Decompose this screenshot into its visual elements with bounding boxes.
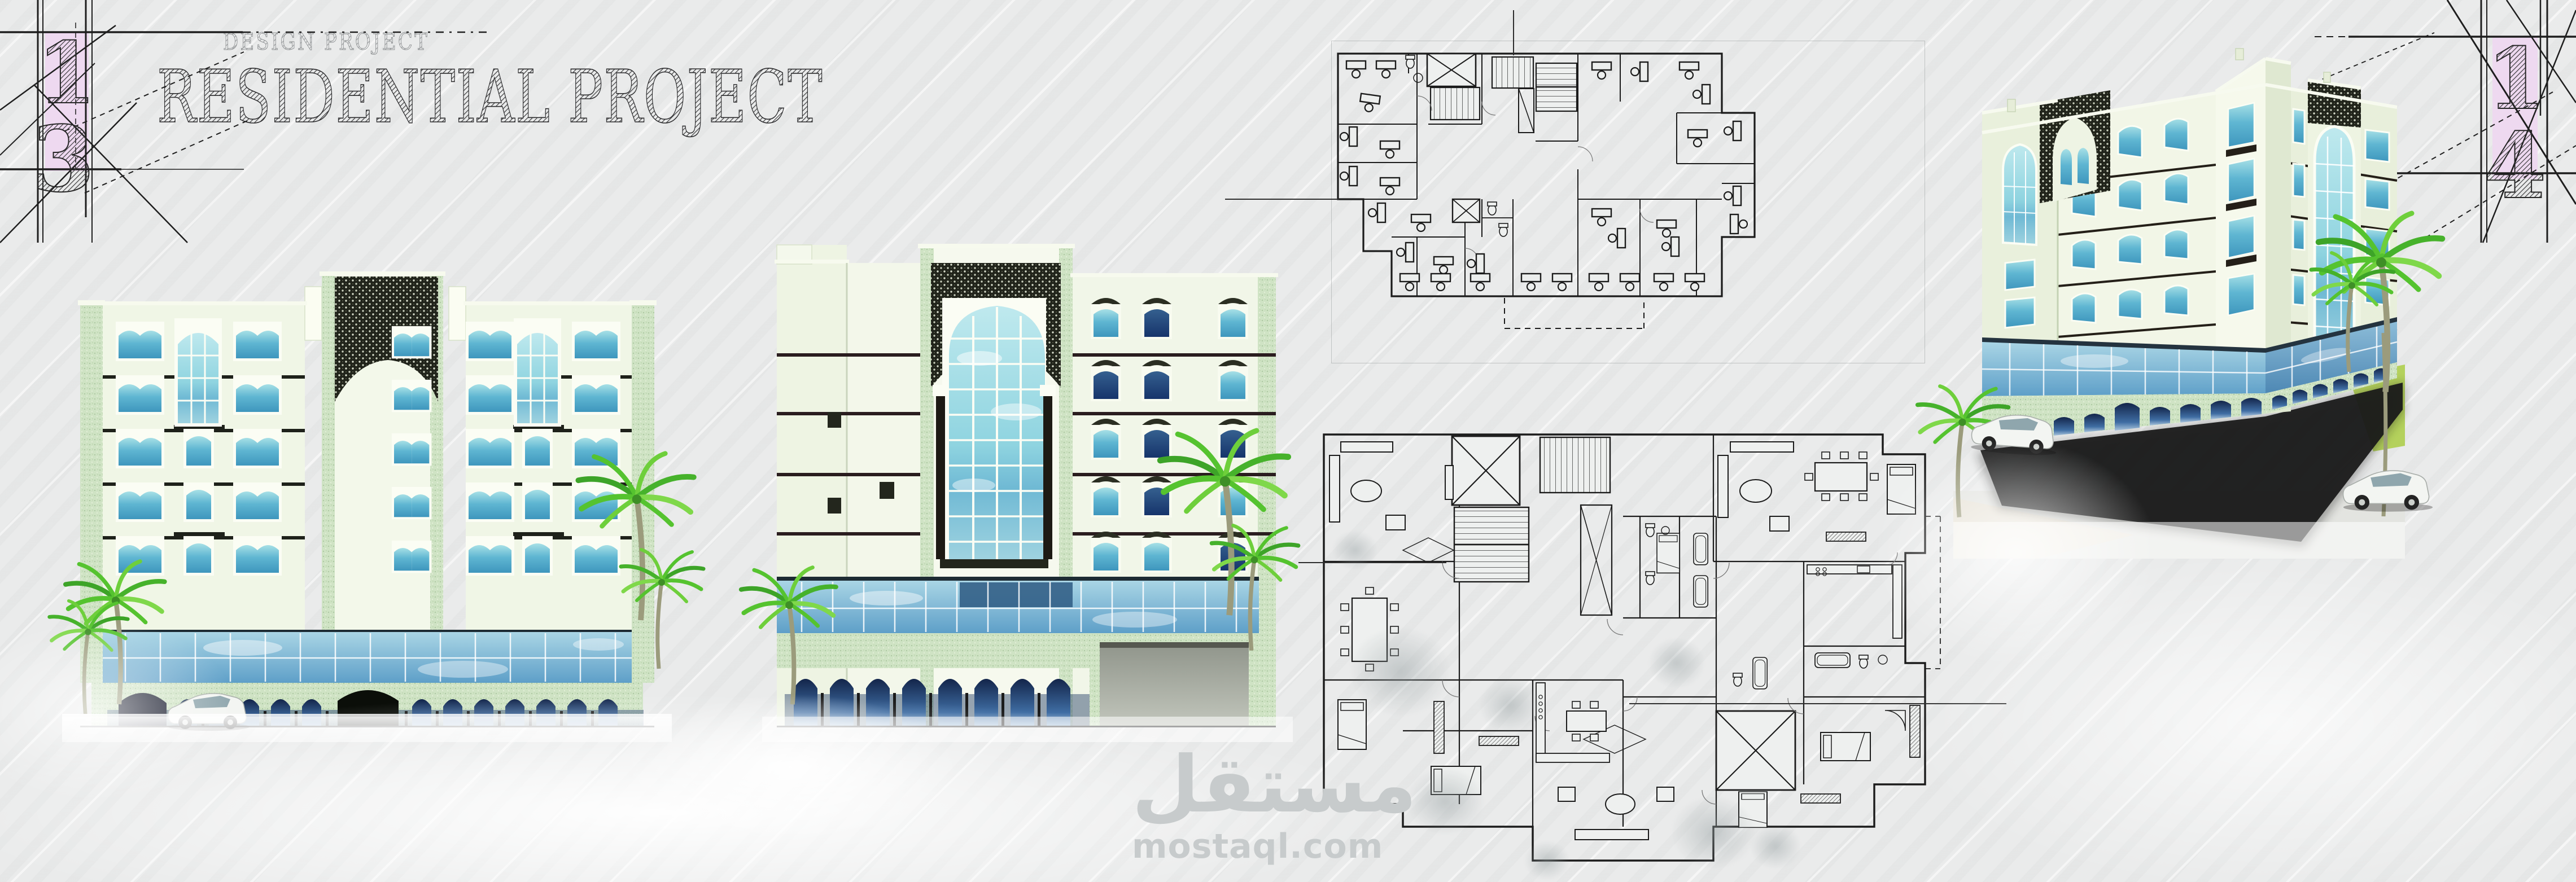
stairs xyxy=(1540,437,1610,493)
watermark: مستقل mostaql.com xyxy=(1132,746,1358,863)
glass-band xyxy=(777,577,1259,633)
reference-line xyxy=(1225,199,1339,200)
stairs xyxy=(1431,87,1480,120)
glass-band xyxy=(103,630,632,683)
door-swings xyxy=(1442,552,1897,804)
floor-plan-walls xyxy=(1338,54,1755,296)
typical-floor-plan-drawing xyxy=(1327,34,1773,358)
extension-dashes xyxy=(1925,516,1940,669)
grand-arched-window xyxy=(933,298,1056,568)
page-index-right-bottom: 4 xyxy=(2483,113,2546,219)
page-index-left: 1 3 xyxy=(0,0,508,243)
presentation-board: DESIGN PROJECT RESIDENTIAL PROJECT 1 3 xyxy=(0,0,2576,882)
side-elevation-rendering xyxy=(773,243,1282,734)
bathroom-fixtures xyxy=(1646,524,1905,731)
perspective-3d-rendering xyxy=(1953,17,2405,559)
front-elevation-rendering xyxy=(73,265,661,739)
watermark-domain: mostaql.com xyxy=(1132,830,1358,863)
car-right xyxy=(2343,471,2433,512)
dining-furniture xyxy=(1341,452,1878,741)
page-index-left-bottom: 3 xyxy=(32,106,94,212)
fog-overlay xyxy=(1908,553,2576,882)
watermark-arabic: مستقل xyxy=(1132,746,1358,824)
stairs xyxy=(1492,57,1533,88)
section-marker xyxy=(1505,298,1644,328)
